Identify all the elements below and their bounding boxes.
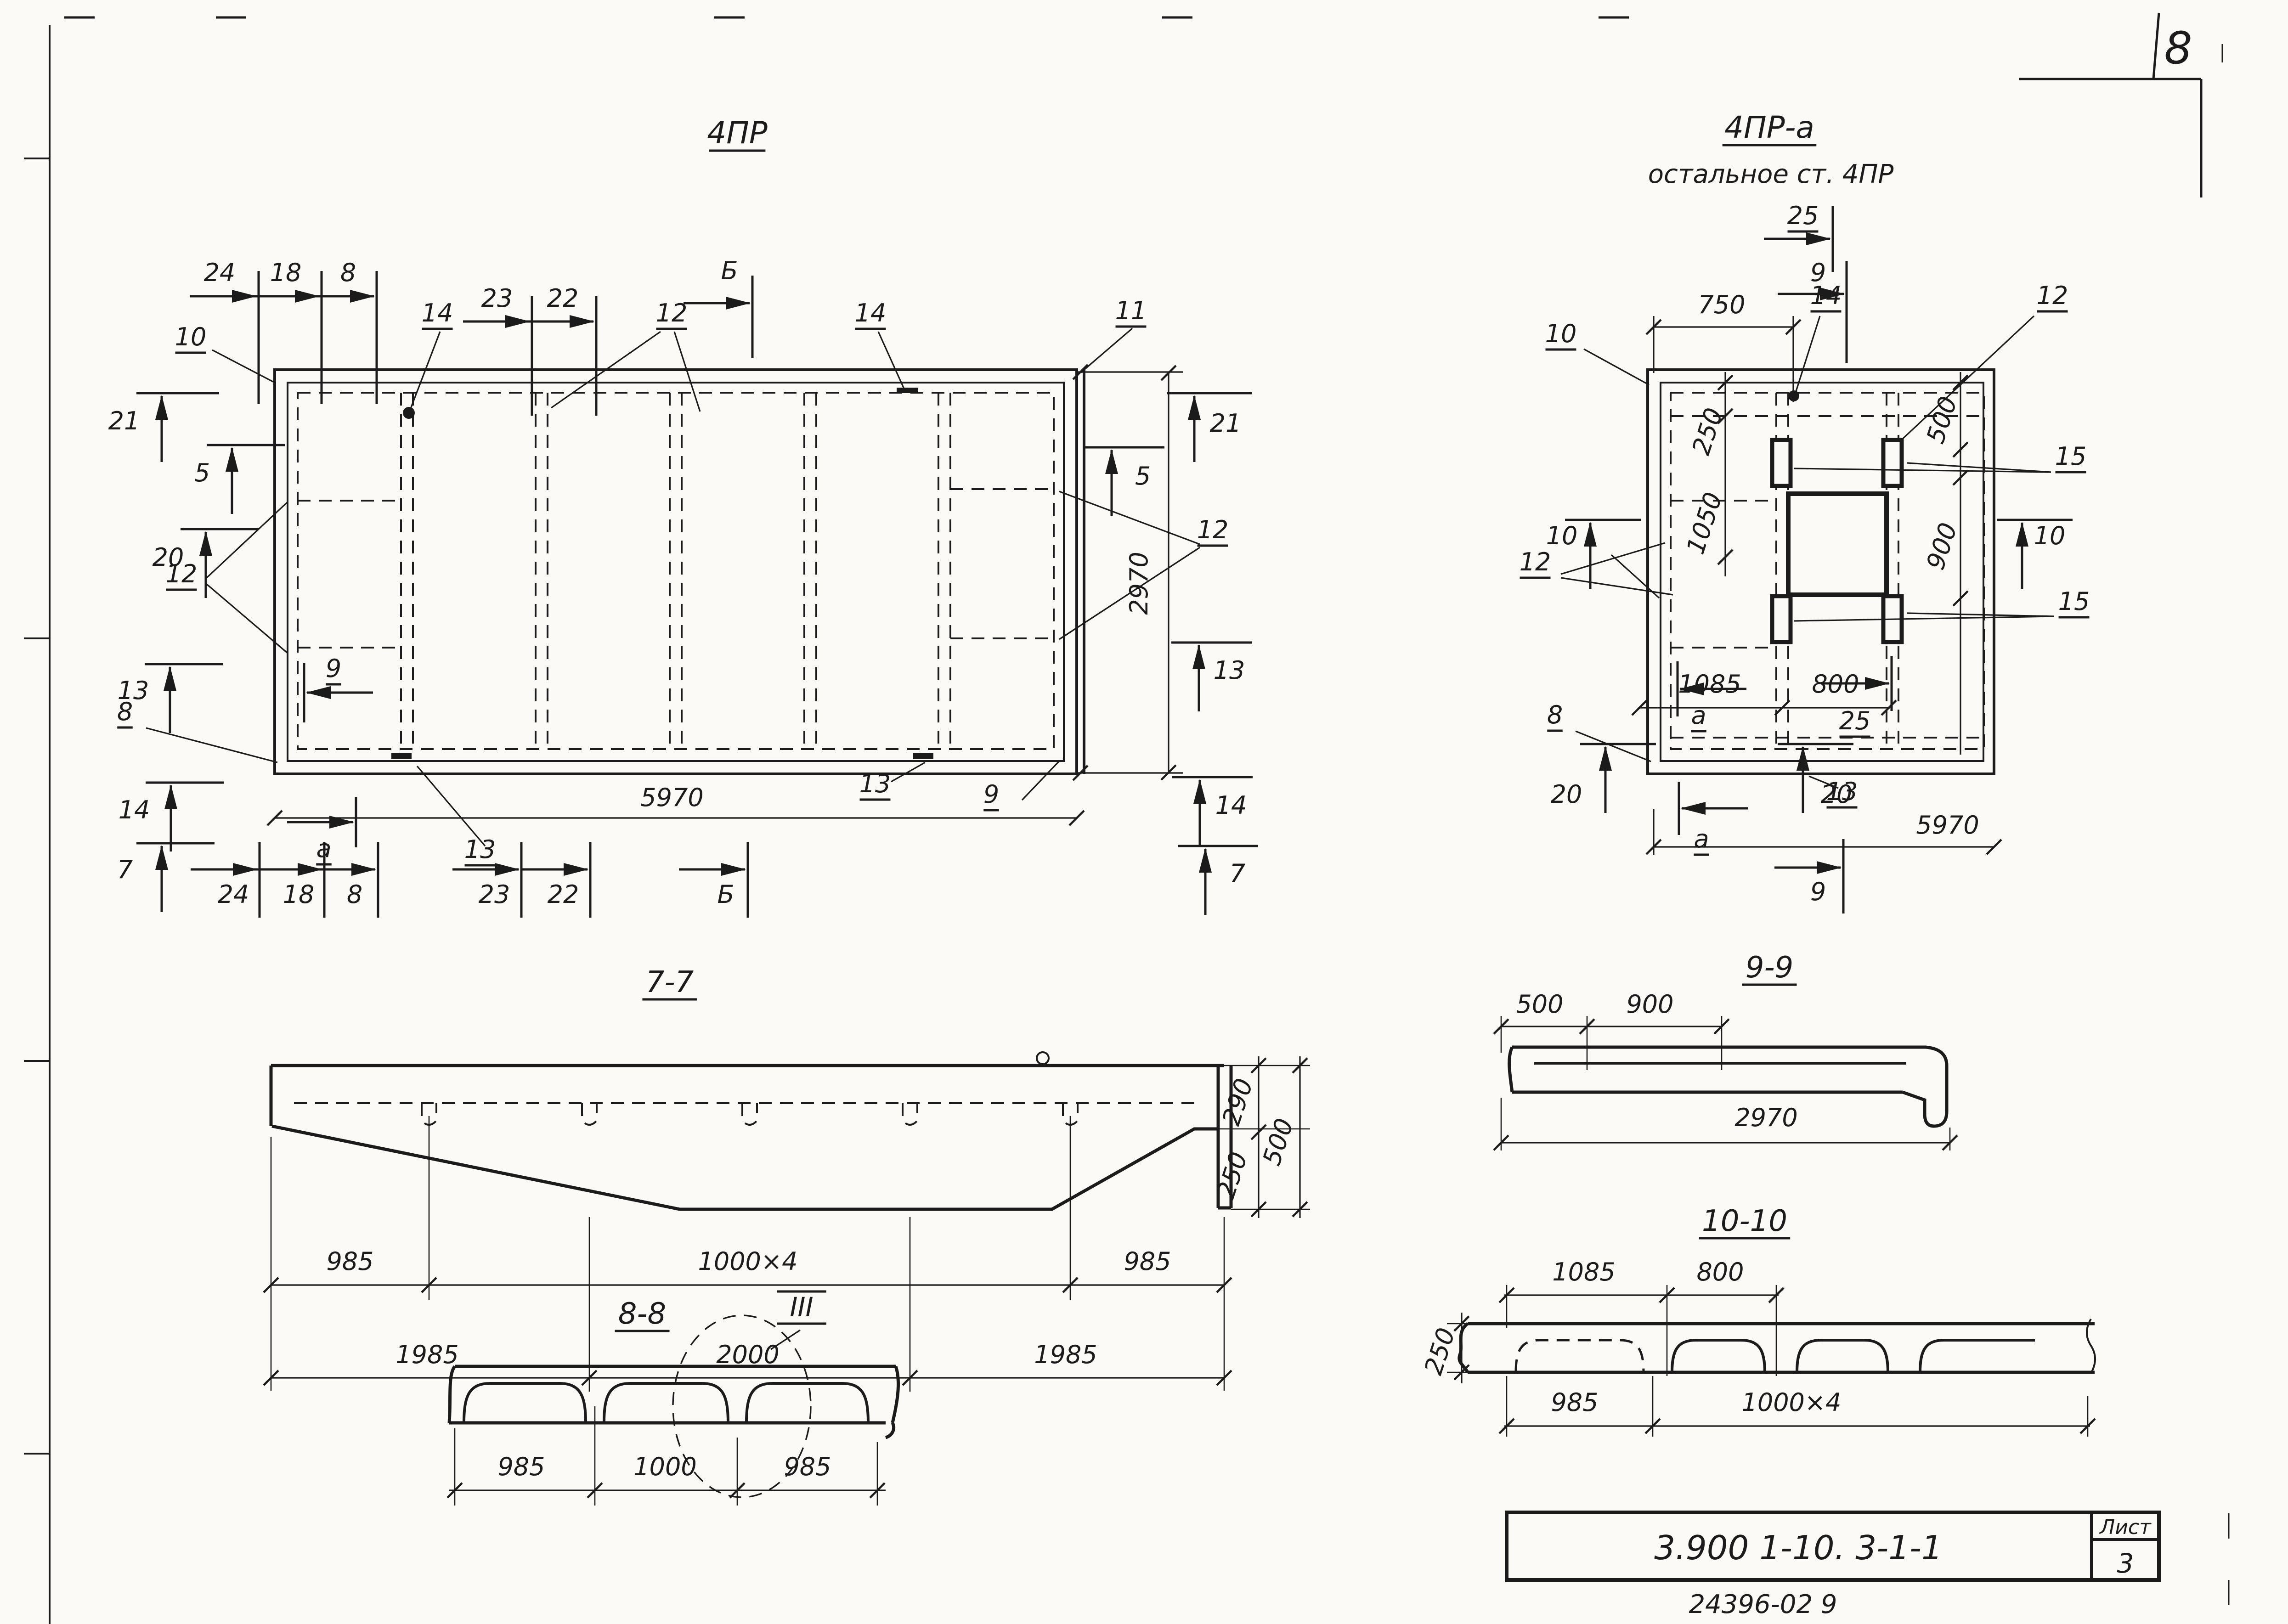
section-arrowhead xyxy=(1188,395,1201,420)
dim-label: 13 xyxy=(118,676,149,705)
dim-label: 22 xyxy=(548,880,579,909)
panel-outline-inner xyxy=(288,383,1064,761)
dim-label: Б xyxy=(717,880,734,909)
leader-line xyxy=(212,350,275,383)
leader-line xyxy=(1561,578,1673,595)
dim-label: Б xyxy=(721,256,738,285)
profile-outline xyxy=(271,1066,1231,1209)
dim-label: 1000 xyxy=(633,1452,696,1481)
dim-label: 985 xyxy=(497,1452,545,1481)
dim-label: 20 xyxy=(1551,780,1582,809)
dim-label: 5 xyxy=(194,458,210,487)
dim-label: 9 xyxy=(1810,258,1826,287)
dim-label: 24 xyxy=(218,880,249,909)
page-number: 8 xyxy=(2164,23,2192,74)
leader-line xyxy=(1576,731,1651,761)
hidden-rib-lines xyxy=(401,393,950,749)
dim-label: 14 xyxy=(422,299,453,327)
section-arrowhead xyxy=(1105,449,1118,474)
dim-label: 985 xyxy=(1124,1247,1171,1276)
dim-label: 750 xyxy=(1698,290,1745,319)
section-arrowhead xyxy=(1681,802,1706,815)
section-arrowhead xyxy=(1599,746,1612,771)
leader-line xyxy=(1794,616,2054,621)
embed-dot xyxy=(403,407,415,419)
dim-label: 12 xyxy=(2037,281,2068,310)
dim-label: 2970 xyxy=(1734,1103,1797,1132)
dim-label: 10 xyxy=(1546,521,1578,550)
dim-label: 25 xyxy=(1839,706,1871,735)
profile-outline xyxy=(1509,1047,1947,1126)
hidden-end-band-lines xyxy=(298,489,1054,648)
dim-label: 8-8 xyxy=(618,1297,667,1331)
section-arrowhead xyxy=(1806,232,1831,245)
dim-label: 9-9 xyxy=(1746,951,1794,985)
dim-label: 10 xyxy=(175,322,207,351)
dim-label: 24 xyxy=(204,258,236,287)
anchor-plate xyxy=(1772,596,1791,642)
dim-label: 9 xyxy=(1810,877,1826,906)
dim-label: 23 xyxy=(479,880,510,909)
section-arrowhead xyxy=(1199,848,1212,873)
dim-label: 13 xyxy=(859,769,891,798)
dim-label: 10 xyxy=(1545,319,1577,348)
frame-dash xyxy=(2222,44,2229,1605)
doc-number: 3.900 1-10. 3-1-1 xyxy=(1654,1528,1943,1567)
slash-ticks xyxy=(1494,1019,1957,1150)
section-arrowhead xyxy=(570,315,594,328)
dim-label: 14 xyxy=(1215,791,1247,820)
dim-label: 1085 xyxy=(1678,670,1741,699)
section-arrowhead xyxy=(350,290,375,303)
dim-label: 2970 xyxy=(1124,552,1153,615)
leader-line xyxy=(1907,613,2054,616)
dim-label: 4ПР-а xyxy=(1724,110,1814,145)
opening xyxy=(1788,494,1887,595)
dim-label: 5 xyxy=(1135,462,1151,491)
dim-label: 500 xyxy=(1516,990,1563,1019)
title-block: 3.900 1-10. 3-1-1 Лист 3 24396-02 9 xyxy=(1507,1512,2159,1619)
section-arrowhead xyxy=(1584,522,1597,547)
section-arrowhead xyxy=(226,447,238,472)
dim-label: 18 xyxy=(283,880,315,909)
dimension-lines xyxy=(275,372,1183,818)
dim-label: 5970 xyxy=(640,783,703,812)
anchor-plate xyxy=(1883,440,1902,486)
section-arrowhead xyxy=(155,395,168,420)
dim-label: 500 xyxy=(1921,393,1963,447)
leader-line xyxy=(878,332,906,393)
leader-line xyxy=(771,1330,800,1349)
anchor-plate xyxy=(1772,440,1791,486)
leader-line xyxy=(674,332,700,412)
section-10-10: 10-1010858002509851000×4 xyxy=(1419,1204,2095,1437)
dim-label: 15 xyxy=(2058,587,2090,616)
dim-label: 1000×4 xyxy=(1741,1388,1841,1417)
section-arrowhead xyxy=(306,686,331,699)
dim-label: 20 xyxy=(1821,780,1853,809)
dim-label: 1000×4 xyxy=(698,1247,797,1276)
section-arrowhead xyxy=(155,845,168,870)
dim-label: 7 xyxy=(117,855,133,884)
leader-line xyxy=(1059,491,1200,544)
dim-label: 25 xyxy=(1787,201,1819,230)
dim-label: 13 xyxy=(1214,656,1245,685)
dim-label: а xyxy=(1694,824,1709,853)
dim-label: 250 xyxy=(1687,405,1729,459)
dim-label: 1050 xyxy=(1681,489,1728,558)
dim-label: 985 xyxy=(784,1452,831,1481)
dim-label: 5970 xyxy=(1916,811,1979,840)
section-9-9: 9-95009002970 xyxy=(1494,951,1957,1150)
dimension-lines xyxy=(1501,1026,1950,1143)
leader-line xyxy=(891,762,925,782)
dim-label: 985 xyxy=(326,1247,373,1276)
section-arrowhead xyxy=(199,531,212,556)
leader-line xyxy=(146,728,277,762)
break-line xyxy=(2087,1319,2095,1373)
left-fold-ticks xyxy=(24,158,50,1454)
dim-label: 9 xyxy=(983,780,999,809)
dim-label: 900 xyxy=(1921,519,1963,574)
dim-label: 900 xyxy=(1626,990,1673,1019)
section-arrowhead xyxy=(233,863,258,876)
dim-label: 8 xyxy=(1547,700,1563,729)
leader-line xyxy=(1611,555,1659,598)
section-arrowhead xyxy=(164,784,177,809)
section-arrowhead xyxy=(351,863,376,876)
cell-inner-lines xyxy=(1672,1340,2035,1372)
dim-label: 22 xyxy=(547,284,579,313)
leader-line xyxy=(1584,349,1649,385)
dim-label: 12 xyxy=(656,299,688,327)
leader-line xyxy=(1899,316,2034,442)
section-arrowhead xyxy=(1192,644,1205,669)
dim-label: 8 xyxy=(347,880,362,909)
dim-label: 13 xyxy=(464,835,496,864)
leader-line xyxy=(1022,761,1060,800)
section-8-8: 8-8III9851000985 xyxy=(447,1291,898,1506)
section-arrowhead xyxy=(2016,522,2028,547)
plan-4pr-a: 4ПР-аостальное ст. 4ПР107501412250105050… xyxy=(1520,110,2090,913)
dim-label: 14 xyxy=(855,299,887,327)
dim-label: 4ПР xyxy=(707,115,768,151)
sheet-value: 3 xyxy=(2117,1548,2134,1579)
section-arrowhead xyxy=(1817,861,1842,874)
dim-label: 1085 xyxy=(1552,1257,1615,1286)
dim-label: 10 xyxy=(2034,521,2066,550)
profile-outline xyxy=(1459,1324,2095,1372)
dim-label: 7-7 xyxy=(646,965,694,999)
plan-4pr: 4ПР1014121411121281313959702970241882322… xyxy=(108,115,1258,918)
section-arrowhead xyxy=(564,863,588,876)
extension-lines xyxy=(1501,1016,1950,1150)
dim-label: остальное ст. 4ПР xyxy=(1648,159,1894,189)
dim-label: 1985 xyxy=(1034,1340,1097,1369)
cell-inner-lines xyxy=(464,1383,868,1423)
dimension-lines xyxy=(271,1056,1300,1378)
dim-label: 21 xyxy=(1210,409,1242,438)
hidden-edge-rect xyxy=(298,393,1054,749)
dim-label: 8 xyxy=(340,258,356,287)
section-arrowhead xyxy=(726,297,751,310)
section-7-7: 7-79851000×4985198520001985290250500 xyxy=(264,965,1310,1392)
leader-line xyxy=(417,766,485,846)
dim-label: 7 xyxy=(1230,859,1245,888)
hidden-cell-line xyxy=(1516,1340,1644,1372)
dim-label: а xyxy=(1691,701,1706,730)
dim-label: 21 xyxy=(108,406,140,435)
dim-label: 11 xyxy=(1115,296,1147,325)
section-arrowhead xyxy=(495,863,520,876)
dim-label: 12 xyxy=(1520,547,1551,576)
stamp-number: 24396-02 9 xyxy=(1689,1590,1837,1619)
section-arrowhead xyxy=(164,666,176,691)
dim-label: 14 xyxy=(119,795,150,824)
dim-label: 23 xyxy=(481,284,513,313)
dim-label: 15 xyxy=(2055,442,2087,471)
sheet-label: Лист xyxy=(2099,1516,2152,1539)
dim-label: 9 xyxy=(326,654,341,683)
lifting-loop xyxy=(1037,1052,1049,1064)
embed-marks xyxy=(391,390,933,756)
section-arrowhead xyxy=(505,315,530,328)
dim-label: 1985 xyxy=(395,1340,458,1369)
dim-label: 500 xyxy=(1257,1115,1299,1169)
hidden-rib-dips xyxy=(422,1103,1078,1125)
dim-label: 12 xyxy=(1197,515,1229,544)
drawing-sheet: 8 4ПР10141214111212813139597029702418823… xyxy=(0,0,2288,1624)
leader-line xyxy=(1080,328,1132,373)
dim-label: 800 xyxy=(1696,1257,1744,1286)
dim-label: III xyxy=(790,1291,813,1323)
dim-label: 20 xyxy=(153,543,184,572)
section-arrowhead xyxy=(721,863,746,876)
dim-label: 290 xyxy=(1217,1075,1259,1129)
panel-outline-outer xyxy=(275,370,1084,774)
dim-label: 10-10 xyxy=(1702,1204,1787,1238)
dim-label: 250 xyxy=(1419,1325,1461,1379)
section-arrowhead xyxy=(1193,779,1206,804)
dim-label: 985 xyxy=(1551,1388,1598,1417)
dim-label: 18 xyxy=(270,258,302,287)
